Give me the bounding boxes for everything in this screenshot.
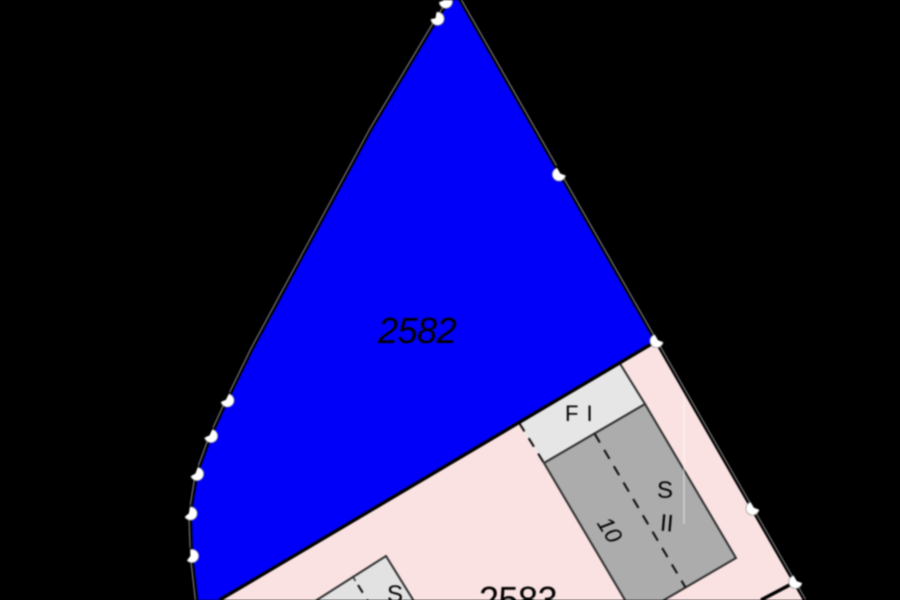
- svg-text:I: I: [587, 401, 593, 426]
- svg-text:S: S: [387, 581, 403, 600]
- svg-text:2582: 2582: [377, 310, 457, 351]
- svg-text:2583: 2583: [479, 579, 557, 600]
- svg-text:S: S: [657, 477, 673, 504]
- svg-text:II: II: [659, 510, 675, 538]
- svg-text:F: F: [565, 401, 578, 426]
